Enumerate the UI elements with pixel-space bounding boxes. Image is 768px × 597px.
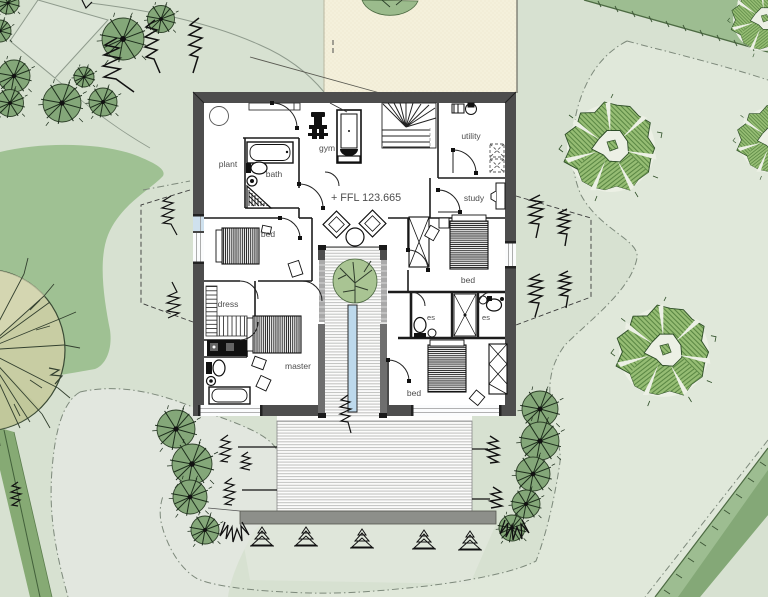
svg-text:study: study xyxy=(464,193,485,203)
svg-text:es: es xyxy=(482,313,490,322)
svg-text:gym: gym xyxy=(319,143,335,153)
svg-text:master: master xyxy=(285,361,311,371)
svg-text:plant: plant xyxy=(219,159,238,169)
svg-text:bed: bed xyxy=(407,388,421,398)
svg-text:bed: bed xyxy=(461,275,475,285)
svg-text:es: es xyxy=(427,313,435,322)
svg-text:utility: utility xyxy=(461,131,481,141)
svg-text:+ FFL 123.665: + FFL 123.665 xyxy=(331,192,401,204)
svg-text:bed: bed xyxy=(261,229,275,239)
svg-text:dress: dress xyxy=(218,299,239,309)
svg-text:bath: bath xyxy=(266,169,283,179)
